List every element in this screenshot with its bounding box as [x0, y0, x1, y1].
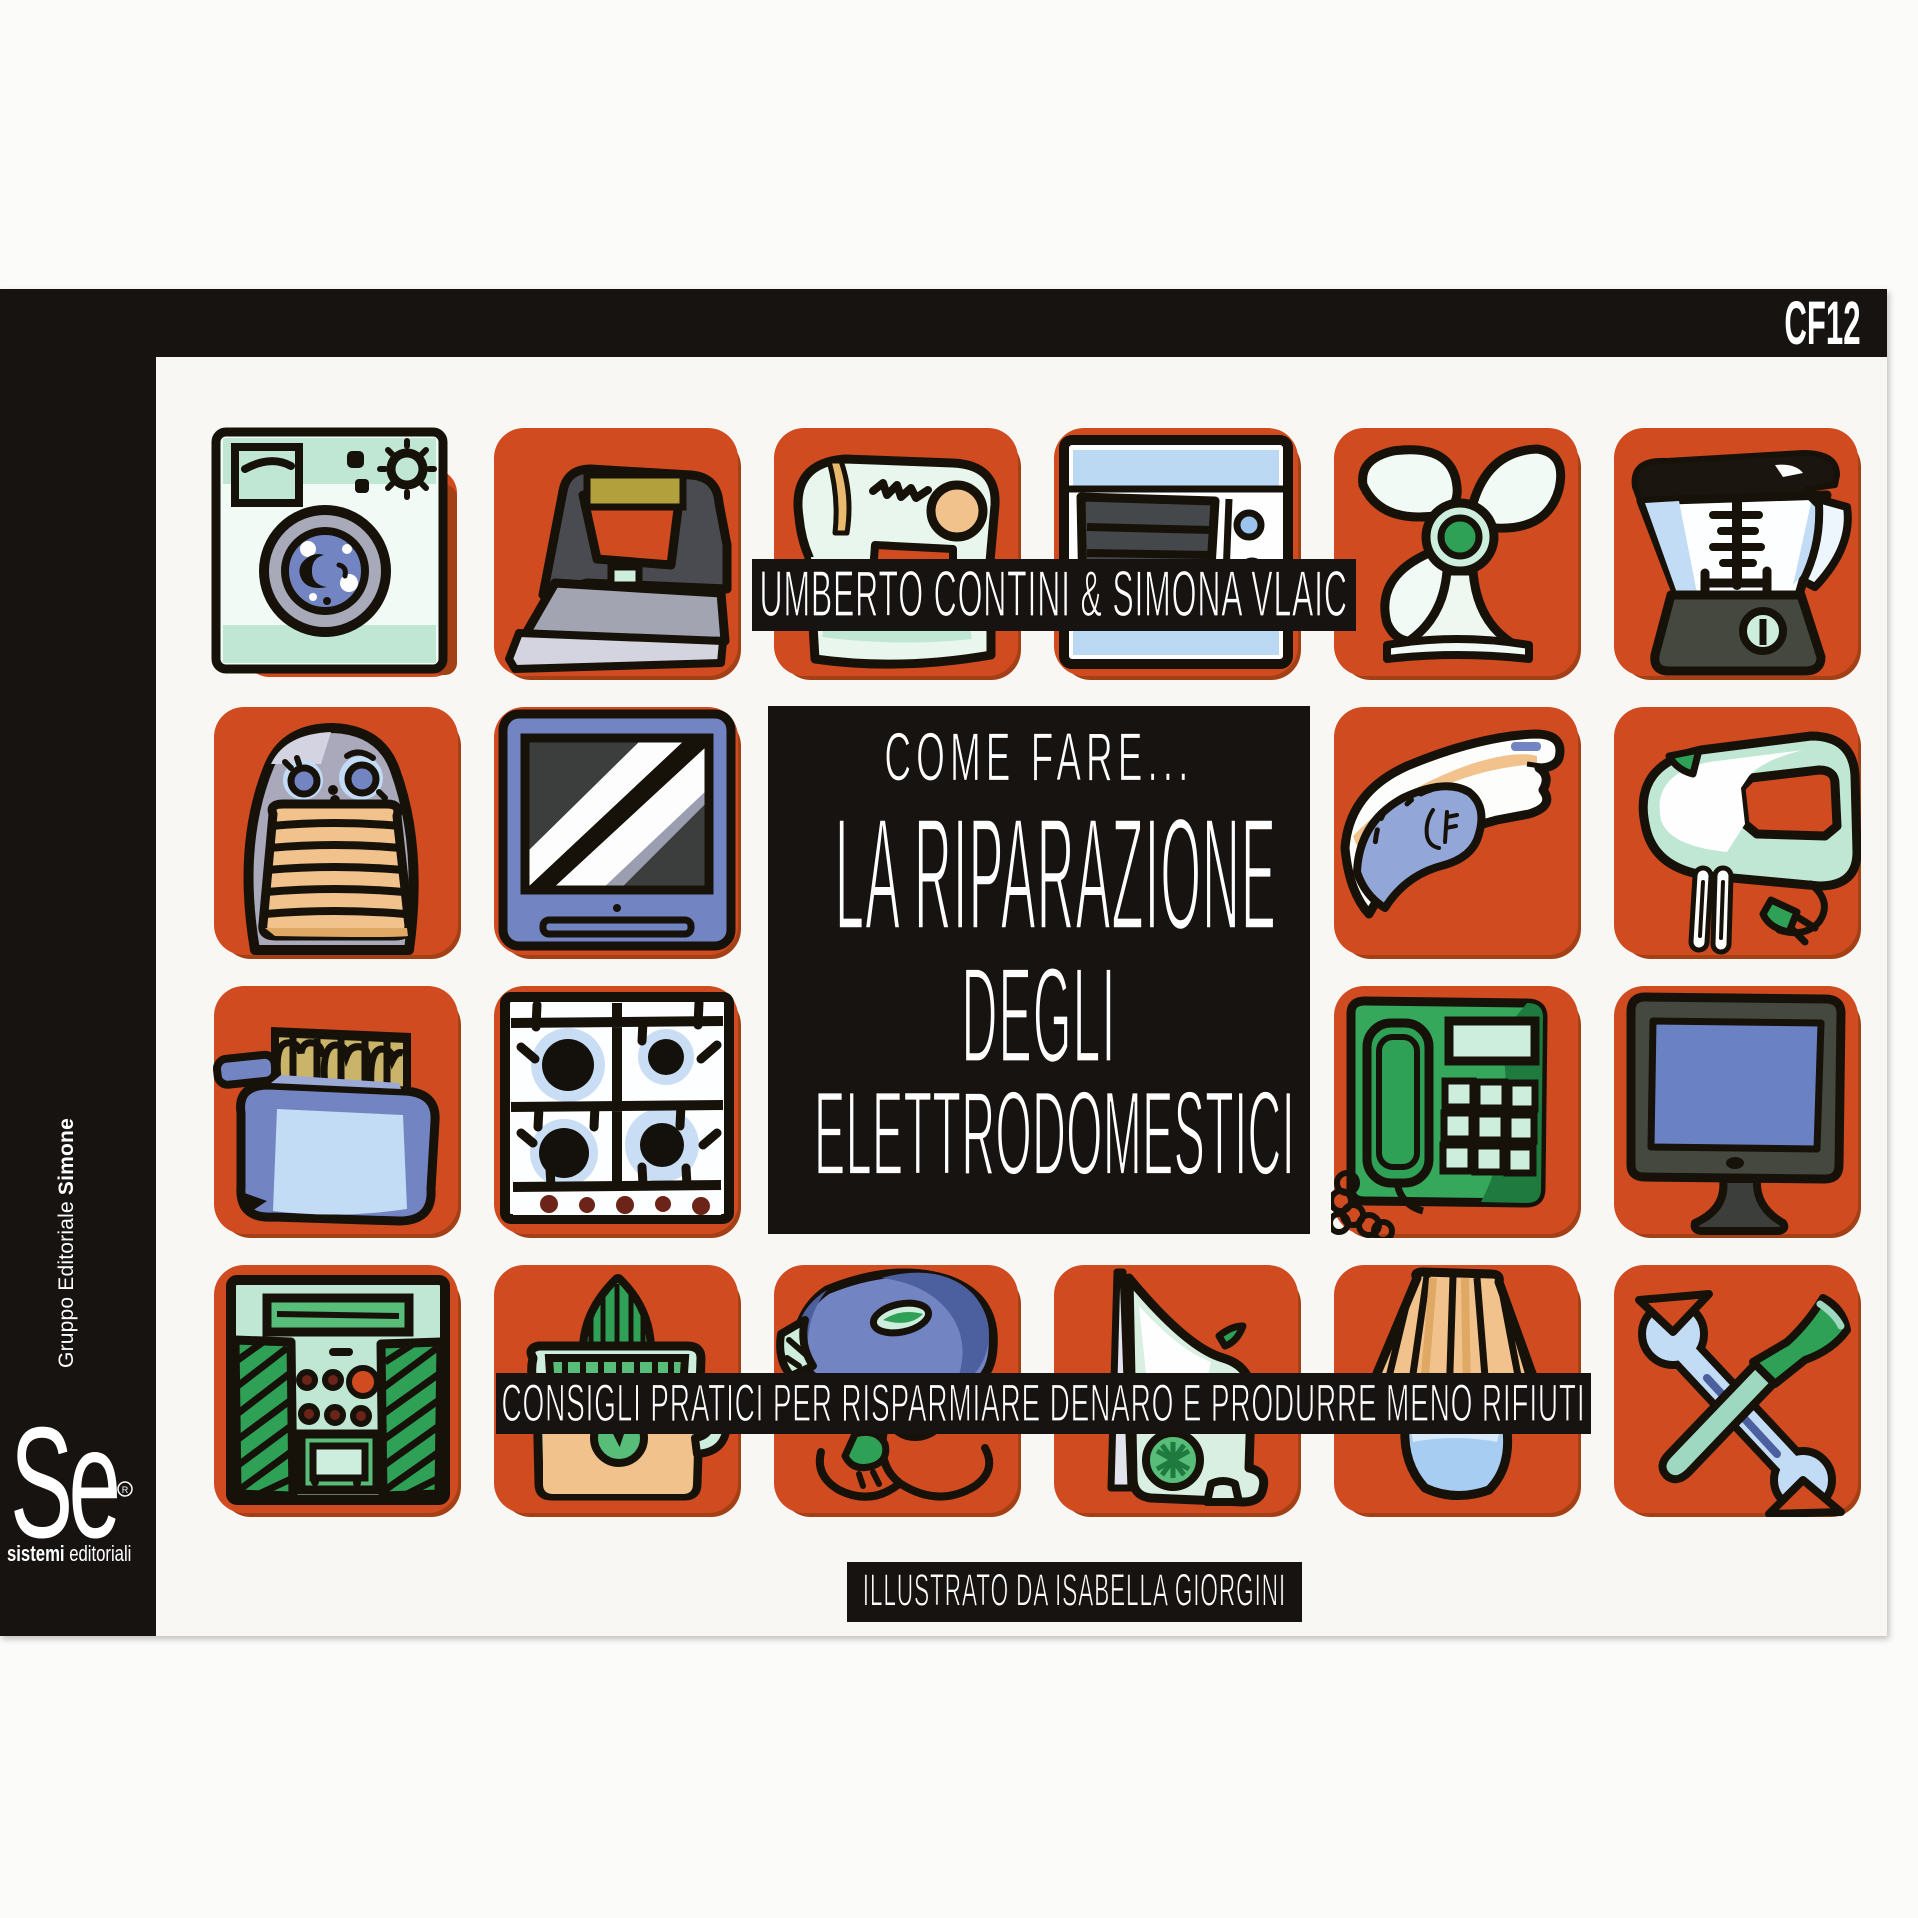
- svg-text:R: R: [122, 1485, 129, 1495]
- svg-text:sistemi editoriali: sistemi editoriali: [7, 1542, 131, 1567]
- svg-text:Gruppo Editoriale Simone: Gruppo Editoriale Simone: [55, 1118, 78, 1368]
